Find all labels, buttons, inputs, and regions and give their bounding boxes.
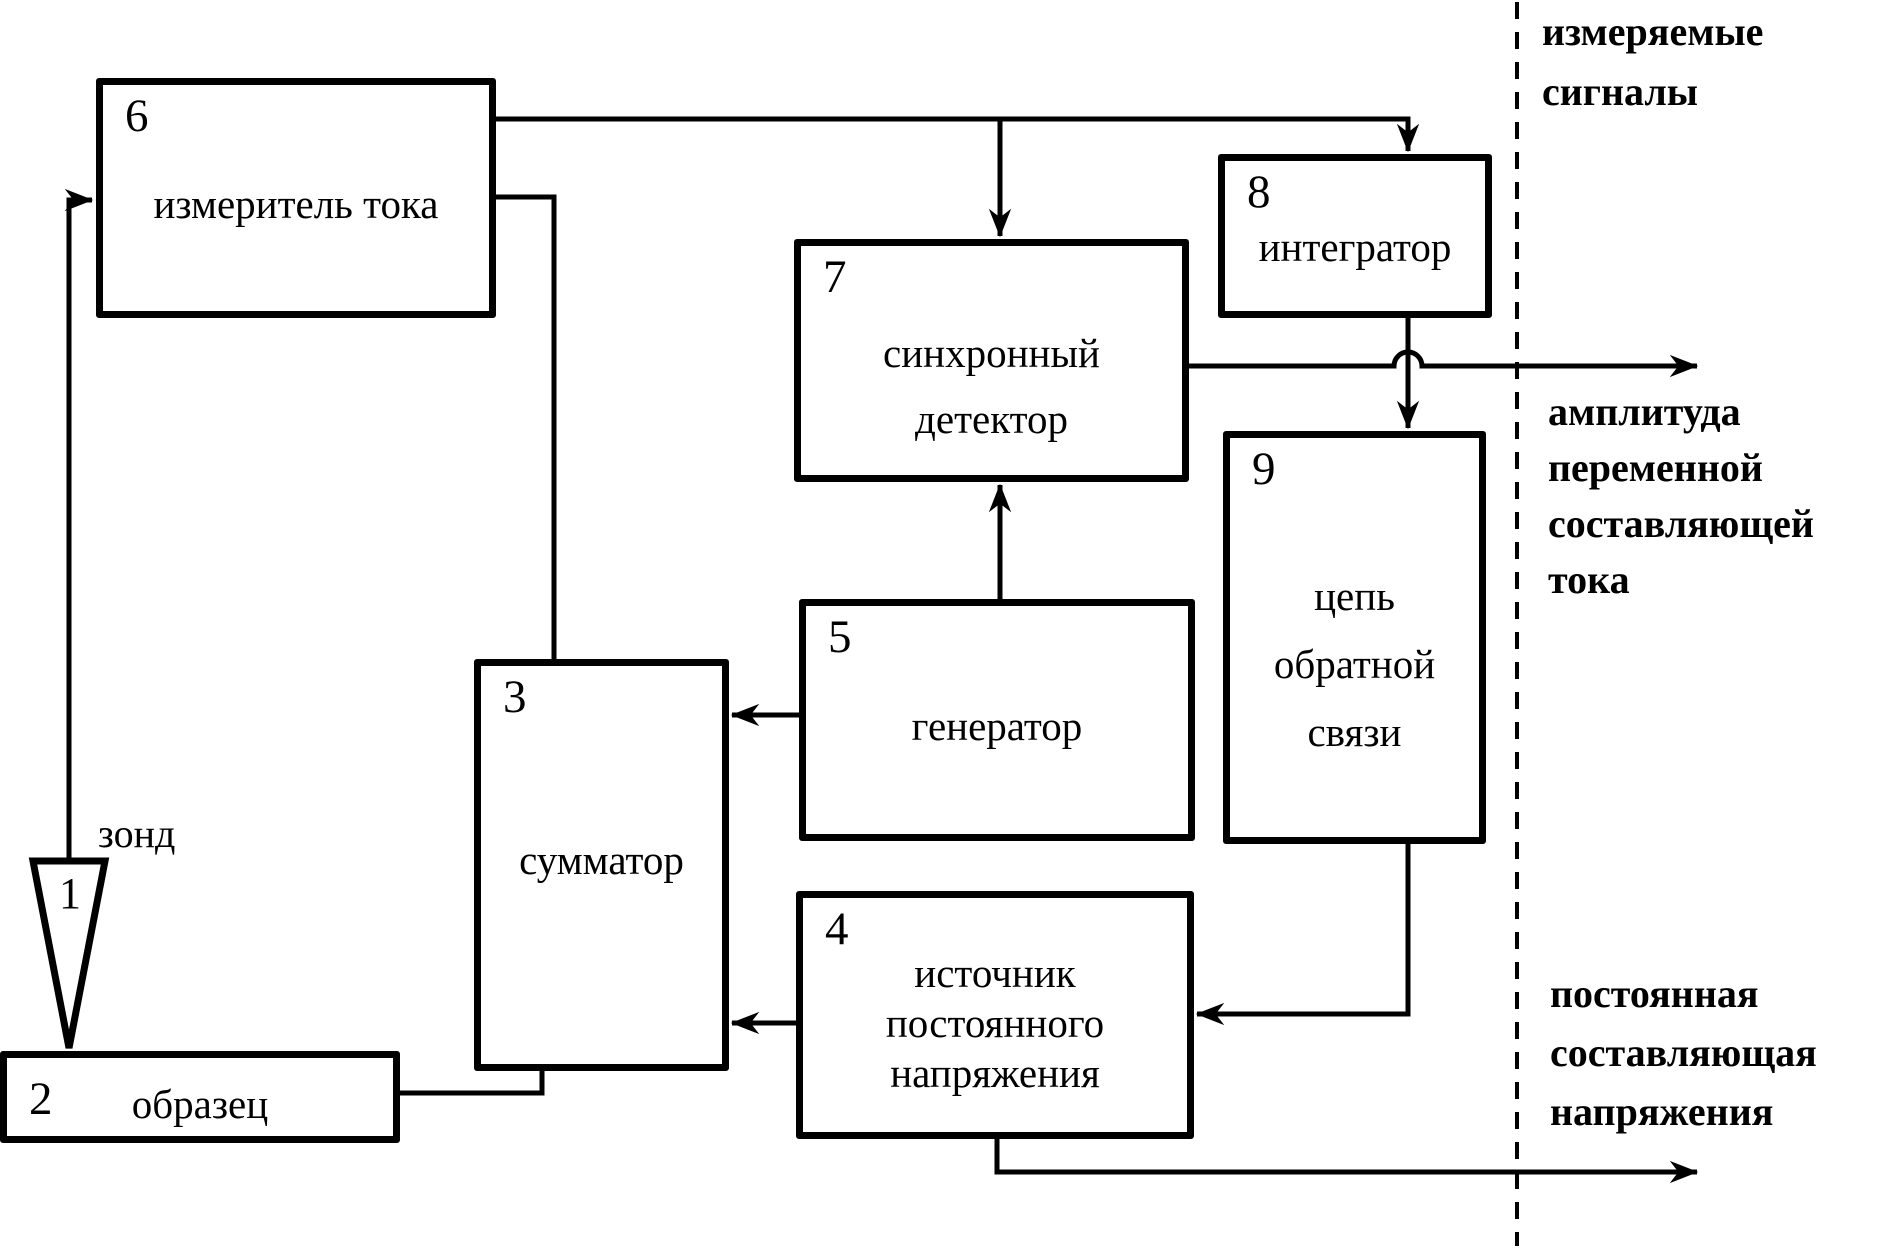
block-label: измеритель тока: [103, 180, 489, 229]
wire-feedback-to-dc-source: [1197, 842, 1408, 1014]
block-current-meter: 6 измеритель тока: [96, 78, 496, 318]
wire-sync-detector-to-ac-amplitude-output: [1187, 352, 1697, 366]
probe-number: 1: [50, 868, 90, 919]
block-label: цепь обратной связи: [1230, 562, 1479, 766]
annotation-dc-voltage-component: постоянная составляющая напряжения: [1550, 964, 1893, 1141]
block-label: интегратор: [1225, 223, 1485, 272]
block-integrator: 8 интегратор: [1218, 154, 1492, 318]
block-number: 9: [1252, 444, 1276, 496]
block-number: 6: [125, 91, 149, 143]
block-number: 5: [828, 612, 852, 664]
wire-dc-source-to-dc-voltage-output: [997, 1137, 1697, 1172]
block-sync-detector: 7 синхронный детектор: [794, 239, 1189, 482]
block-generator: 5 генератор: [799, 599, 1195, 841]
block-sample: 2 образец: [0, 1051, 400, 1143]
block-number: 7: [823, 252, 847, 304]
block-number: 3: [503, 672, 527, 724]
block-label: источник постоянного напряжения: [803, 948, 1187, 1098]
annotation-measured-signals: измеряемые сигналы: [1542, 2, 1882, 122]
block-label: синхронный детектор: [801, 320, 1182, 452]
block-label: сумматор: [481, 836, 722, 885]
wire-sample-to-summer: [398, 1068, 542, 1093]
block-number: 8: [1247, 167, 1271, 219]
block-dc-source: 4 источник постоянного напряжения: [796, 891, 1194, 1139]
block-diagram: 6 измеритель тока 7 синхронный детектор …: [0, 0, 1893, 1248]
wire-probe-to-current-meter: [69, 200, 92, 862]
wire-current-meter-to-summer: [493, 197, 554, 666]
block-label: генератор: [806, 702, 1188, 751]
block-summer: 3 сумматор: [474, 659, 729, 1071]
wire-current-meter-to-integrator: [493, 119, 1408, 151]
annotation-ac-current-amplitude: амплитуда переменной составляющей тока: [1548, 384, 1883, 608]
block-label: образец: [7, 1080, 393, 1129]
block-feedback-circuit: 9 цепь обратной связи: [1223, 431, 1486, 844]
probe-label: зонд: [98, 810, 175, 857]
